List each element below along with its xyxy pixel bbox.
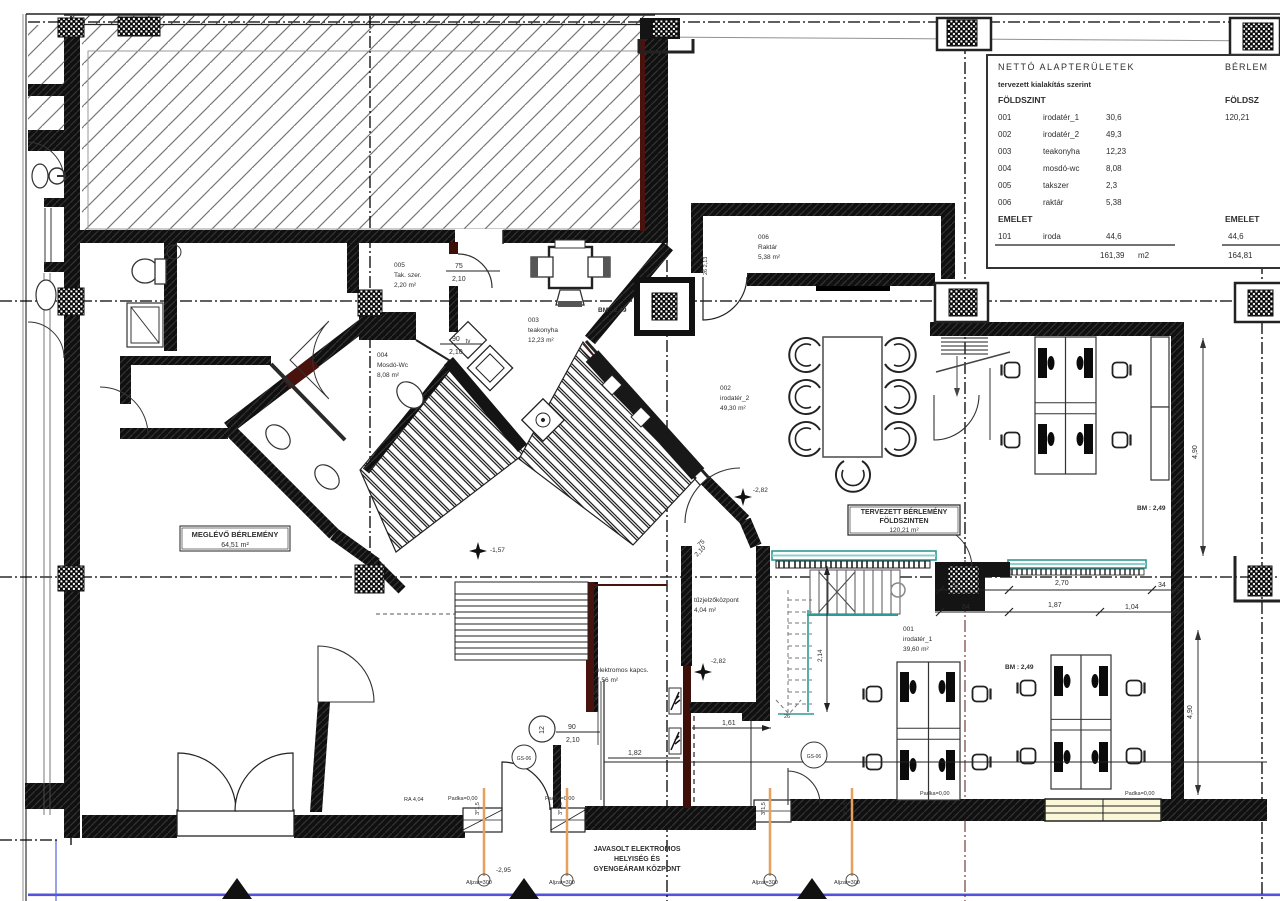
svg-text:2,10: 2,10: [452, 276, 466, 283]
svg-text:Padka=0,00: Padka=0,00: [545, 796, 575, 802]
svg-text:006: 006: [758, 234, 769, 241]
svg-text:12,23 m²: 12,23 m²: [528, 337, 554, 344]
svg-text:001: 001: [903, 626, 914, 633]
svg-text:Tak. szer.: Tak. szer.: [394, 272, 422, 279]
svg-text:7,56 m²: 7,56 m²: [596, 677, 619, 684]
svg-text:irodatér_1: irodatér_1: [903, 636, 933, 643]
svg-text:005: 005: [394, 262, 405, 269]
svg-text:EMELET: EMELET: [998, 214, 1033, 224]
svg-text:-2,82: -2,82: [753, 487, 768, 494]
svg-text:BÉRLEM: BÉRLEM: [1225, 62, 1268, 72]
svg-text:irodatér_1: irodatér_1: [1043, 113, 1080, 122]
svg-text:m2: m2: [1138, 251, 1150, 260]
svg-text:90: 90: [452, 336, 460, 343]
svg-text:001: 001: [998, 113, 1012, 122]
svg-text:elektromos kapcs.: elektromos kapcs.: [596, 667, 649, 674]
svg-text:Padka=0,00: Padka=0,00: [448, 796, 478, 802]
svg-text:tervezett kialakítás szerint: tervezett kialakítás szerint: [998, 80, 1091, 89]
svg-text:mosdó-wc: mosdó-wc: [1043, 164, 1079, 173]
svg-text:12: 12: [539, 726, 546, 734]
svg-text:3*1,5: 3*1,5: [475, 802, 481, 815]
svg-text:tűzjelzőközpont: tűzjelzőközpont: [694, 597, 739, 604]
svg-text:Padka=0,00: Padka=0,00: [1125, 791, 1155, 797]
svg-text:3*1,5: 3*1,5: [558, 802, 564, 815]
svg-text:HELYISÉG ÉS: HELYISÉG ÉS: [614, 854, 660, 863]
svg-text:4,04 m²: 4,04 m²: [694, 607, 717, 614]
svg-text:006: 006: [998, 198, 1012, 207]
svg-text:GS-06: GS-06: [807, 754, 822, 760]
svg-text:002: 002: [720, 385, 731, 392]
svg-text:003: 003: [998, 147, 1012, 156]
svg-text:84: 84: [962, 604, 970, 611]
svg-text:4,90: 4,90: [1187, 705, 1194, 719]
svg-text:12,23: 12,23: [1106, 147, 1127, 156]
svg-text:BM : 2,49: BM : 2,49: [1005, 664, 1034, 671]
svg-text:5,38: 5,38: [1106, 198, 1122, 207]
svg-text:Padka=0,00: Padka=0,00: [920, 791, 950, 797]
svg-text:teakonyha: teakonyha: [528, 327, 558, 334]
svg-text:BM : 2,49: BM : 2,49: [1137, 505, 1166, 512]
svg-text:49,30 m²: 49,30 m²: [720, 405, 746, 412]
svg-text:64,51 m²: 64,51 m²: [221, 542, 249, 549]
svg-text:1,87: 1,87: [1048, 602, 1062, 609]
svg-text:26: 26: [784, 714, 790, 720]
svg-text:26 2,13: 26 2,13: [703, 257, 709, 275]
svg-text:005: 005: [998, 181, 1012, 190]
svg-text:RA 4,04: RA 4,04: [404, 797, 424, 803]
svg-text:1,04: 1,04: [1125, 604, 1139, 611]
svg-text:161,39: 161,39: [1100, 251, 1125, 260]
svg-text:1,61: 1,61: [722, 720, 736, 727]
svg-text:49,3: 49,3: [1106, 130, 1122, 139]
svg-text:-1,57: -1,57: [490, 547, 505, 554]
svg-text:8,08 m²: 8,08 m²: [377, 372, 400, 379]
svg-text:164,81: 164,81: [1228, 251, 1253, 260]
svg-text:teakonyha: teakonyha: [1043, 147, 1080, 156]
svg-text:4,36: 4,36: [593, 687, 600, 700]
svg-text:-2,82: -2,82: [711, 658, 726, 665]
svg-text:1,82: 1,82: [628, 750, 642, 757]
svg-text:101: 101: [998, 232, 1012, 241]
svg-text:3*1,5: 3*1,5: [843, 802, 849, 815]
svg-text:44,6: 44,6: [1228, 232, 1244, 241]
svg-text:GS-06: GS-06: [517, 756, 532, 762]
svg-text:004: 004: [998, 164, 1012, 173]
svg-text:-2,95: -2,95: [496, 867, 511, 874]
svg-text:JAVASOLT ELEKTROMOS: JAVASOLT ELEKTROMOS: [593, 846, 680, 853]
svg-text:Aljzat=300: Aljzat=300: [466, 880, 492, 886]
svg-text:FÖLDSZINTEN: FÖLDSZINTEN: [880, 516, 929, 525]
svg-text:39,60 m²: 39,60 m²: [903, 646, 929, 653]
svg-text:61: 61: [952, 582, 960, 589]
svg-text:GYENGEÁRAM KÖZPONT: GYENGEÁRAM KÖZPONT: [593, 864, 681, 873]
svg-text:takszer: takszer: [1043, 181, 1069, 190]
svg-text:Aljzat=300: Aljzat=300: [752, 880, 778, 886]
svg-text:8,08: 8,08: [1106, 164, 1122, 173]
svg-text:004: 004: [377, 352, 388, 359]
svg-text:iroda: iroda: [1043, 232, 1061, 241]
svg-text:TERVEZETT BÉRLEMÉNY: TERVEZETT BÉRLEMÉNY: [861, 507, 948, 516]
svg-text:FÖLDSZ: FÖLDSZ: [1225, 95, 1259, 105]
svg-text:FÖLDSZINT: FÖLDSZINT: [998, 95, 1046, 105]
svg-text:120,21: 120,21: [1225, 113, 1250, 122]
svg-text:2,10: 2,10: [449, 349, 463, 356]
svg-text:Aljzat=300: Aljzat=300: [549, 880, 575, 886]
svg-text:120,21 m²: 120,21 m²: [889, 527, 919, 534]
svg-text:BM : 2,49: BM : 2,49: [598, 307, 627, 314]
svg-text:5,38 m²: 5,38 m²: [758, 254, 781, 261]
svg-text:34: 34: [1158, 582, 1166, 589]
svg-text:002: 002: [998, 130, 1012, 139]
svg-text:3*1,5: 3*1,5: [761, 802, 767, 815]
svg-text:2,20 m²: 2,20 m²: [394, 282, 417, 289]
svg-text:MEGLÉVŐ BÉRLEMÉNY: MEGLÉVŐ BÉRLEMÉNY: [192, 530, 279, 539]
svg-text:EMELET: EMELET: [1225, 214, 1260, 224]
svg-text:2,14: 2,14: [817, 649, 824, 662]
svg-text:Raktár: Raktár: [758, 244, 778, 251]
svg-text:2,70: 2,70: [1055, 580, 1069, 587]
svg-text:75: 75: [455, 263, 463, 270]
svg-text:003: 003: [528, 317, 539, 324]
svg-text:2,10: 2,10: [566, 737, 580, 744]
svg-text:NETTÓ ALAPTERÜLETEK: NETTÓ ALAPTERÜLETEK: [998, 62, 1135, 72]
svg-text:Mosdó-Wc: Mosdó-Wc: [377, 362, 409, 369]
svg-text:30,6: 30,6: [1106, 113, 1122, 122]
svg-text:Aljzat=300: Aljzat=300: [834, 880, 860, 886]
svg-text:2,3: 2,3: [1106, 181, 1118, 190]
svg-text:raktár: raktár: [1043, 198, 1064, 207]
svg-text:irodatér_2: irodatér_2: [720, 395, 750, 402]
svg-text:4,90: 4,90: [1192, 445, 1199, 459]
svg-text:90: 90: [568, 724, 576, 731]
svg-text:irodatér_2: irodatér_2: [1043, 130, 1080, 139]
svg-text:44,6: 44,6: [1106, 232, 1122, 241]
